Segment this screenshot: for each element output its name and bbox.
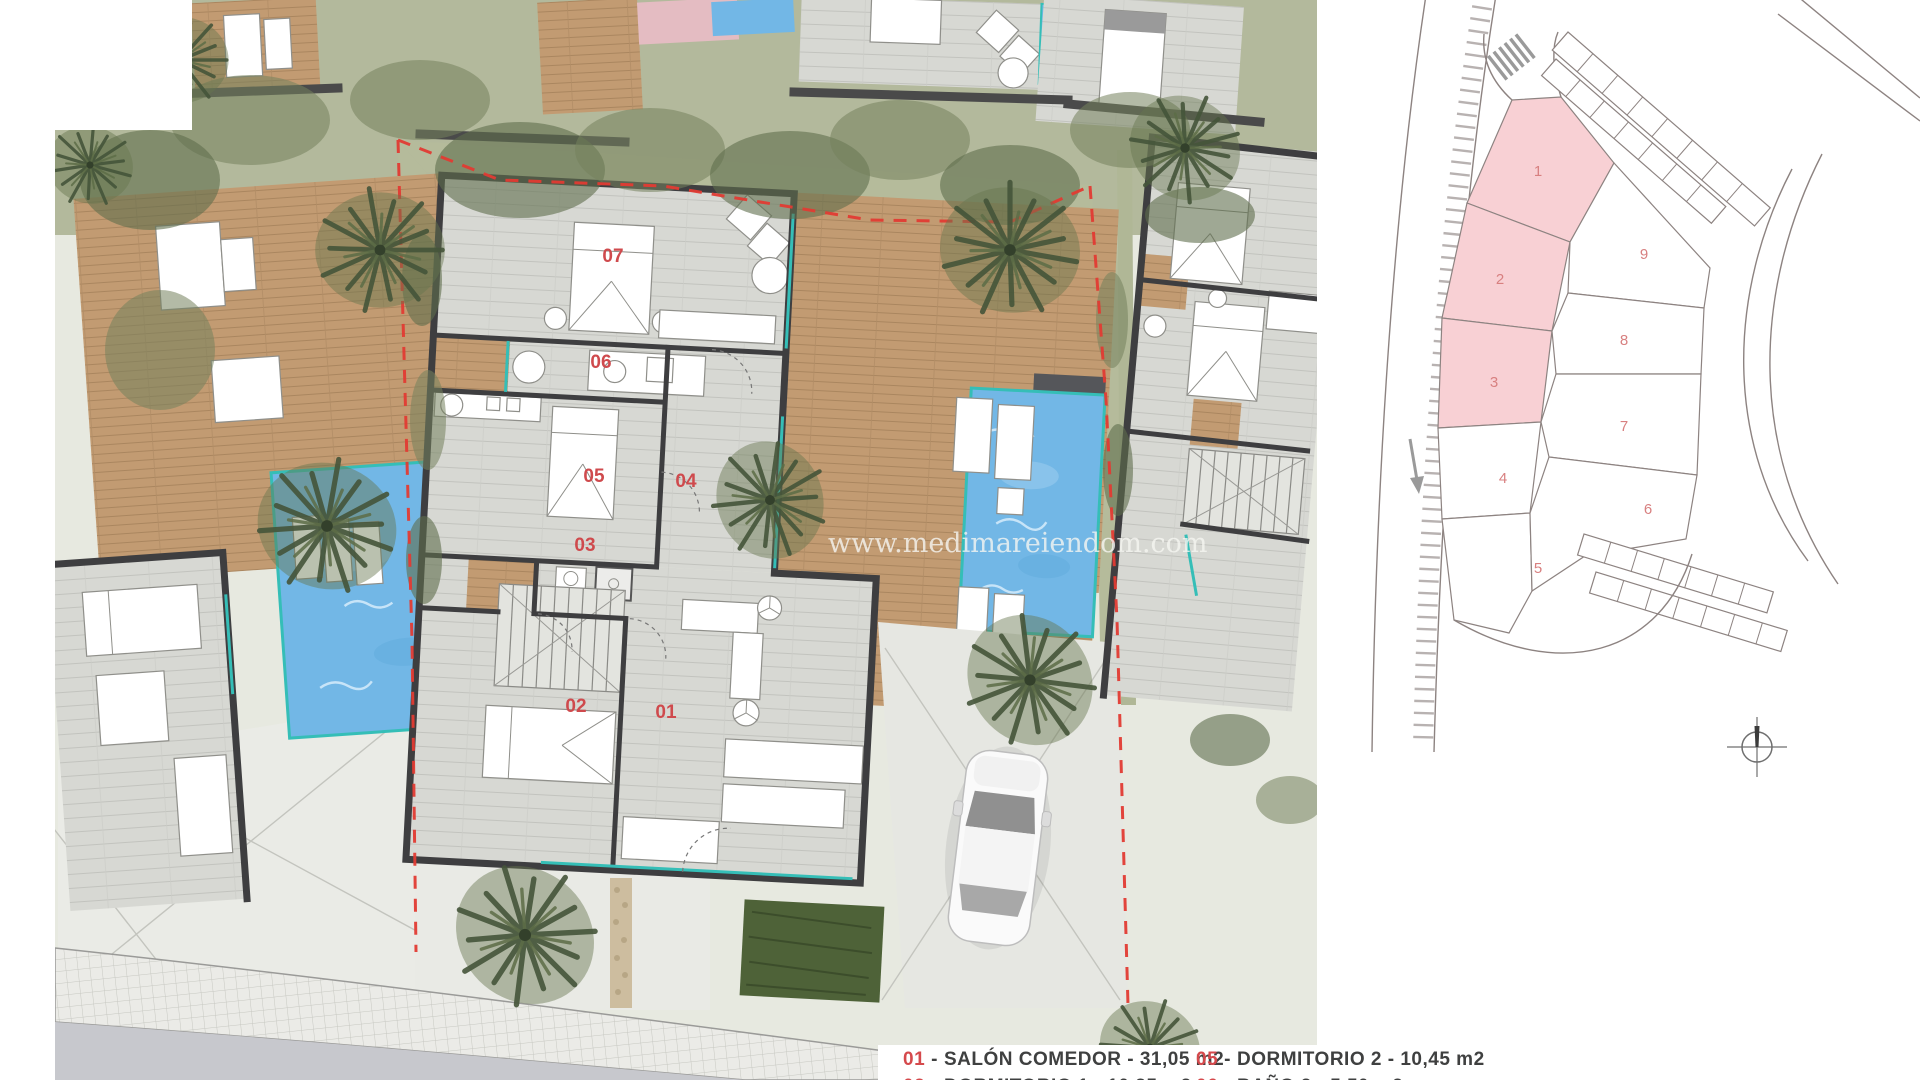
legend-item-02: 02-DORMITORIO 1 - 10,35 m2 [903, 1076, 1192, 1080]
pedestrian-crossing [1487, 33, 1536, 80]
legend-text: BAÑO 2 - 5,50 m2 [1237, 1076, 1403, 1080]
room-legend: 01-SALÓN COMEDOR - 31,05 m2 05-DORMITORI… [878, 1045, 1920, 1080]
plot-5-number: 5 [1534, 560, 1542, 577]
bed [482, 705, 616, 784]
pebble-strip [610, 878, 632, 1008]
plot-6-number: 6 [1644, 501, 1652, 518]
plot-1-number: 1 [1534, 163, 1542, 180]
room-label-02: 02 [565, 696, 586, 717]
bed [569, 222, 655, 334]
page: 07 06 05 04 03 02 01 www.medimareiendom.… [0, 0, 1920, 1080]
compass-icon [1727, 717, 1787, 777]
sun-lounger [995, 405, 1035, 481]
stairs [494, 584, 625, 692]
site-plan-diagram: 1 2 3 4 5 6 7 8 9 [1360, 0, 1920, 820]
plot-4-number: 4 [1499, 470, 1507, 487]
legend-item-05: 05-DORMITORIO 2 - 10,45 m2 [1196, 1049, 1485, 1071]
left-neighbor-villa [46, 552, 247, 911]
plot-8-number: 8 [1620, 332, 1628, 349]
room-label-07: 07 [602, 246, 623, 267]
room-label-03: 03 [574, 535, 595, 556]
sun-lounger [953, 397, 993, 473]
right-margin [1317, 0, 1360, 1080]
left-margin [0, 0, 55, 1080]
floor-plan-render: 07 06 05 04 03 02 01 www.medimareiendom.… [0, 0, 1360, 1080]
neighbor-pool [711, 0, 795, 36]
legend-number: 06 [1196, 1076, 1218, 1080]
plot-5 [1442, 513, 1532, 633]
room-label-05: 05 [583, 466, 605, 487]
plot-3 [1438, 318, 1552, 428]
plot-3-number: 3 [1490, 374, 1498, 391]
legend-number: 01 [903, 1049, 925, 1070]
sofa [681, 599, 758, 633]
direction-arrow-icon [1410, 439, 1424, 494]
legend-text: DORMITORIO 1 - 10,35 m2 [944, 1076, 1192, 1080]
legend-item-06: 06-BAÑO 2 - 5,50 m2 [1196, 1076, 1403, 1080]
hedge [740, 899, 885, 1002]
kitchen-counter [724, 739, 864, 784]
bed [547, 406, 619, 519]
legend-item-01: 01-SALÓN COMEDOR - 31,05 m2 [903, 1049, 1224, 1071]
plot-7-number: 7 [1620, 418, 1628, 435]
legend-number: 05 [1196, 1049, 1218, 1070]
stairs [1183, 449, 1305, 535]
room-label-06: 06 [590, 352, 611, 373]
legend-text: DORMITORIO 2 - 10,45 m2 [1237, 1049, 1485, 1070]
sofa [730, 632, 763, 699]
room-label-04: 04 [675, 471, 697, 492]
legend-number: 02 [903, 1076, 925, 1080]
watermark: www.medimareiendom.com [828, 528, 1208, 559]
plot-4 [1438, 422, 1541, 519]
kitchen-island [621, 817, 719, 864]
room-label-01: 01 [655, 702, 677, 723]
road-outer-edge [1372, 0, 1426, 752]
plot-9-number: 9 [1640, 246, 1648, 263]
plot-2-number: 2 [1496, 271, 1504, 288]
legend-text: SALÓN COMEDOR - 31,05 m2 [944, 1049, 1224, 1070]
